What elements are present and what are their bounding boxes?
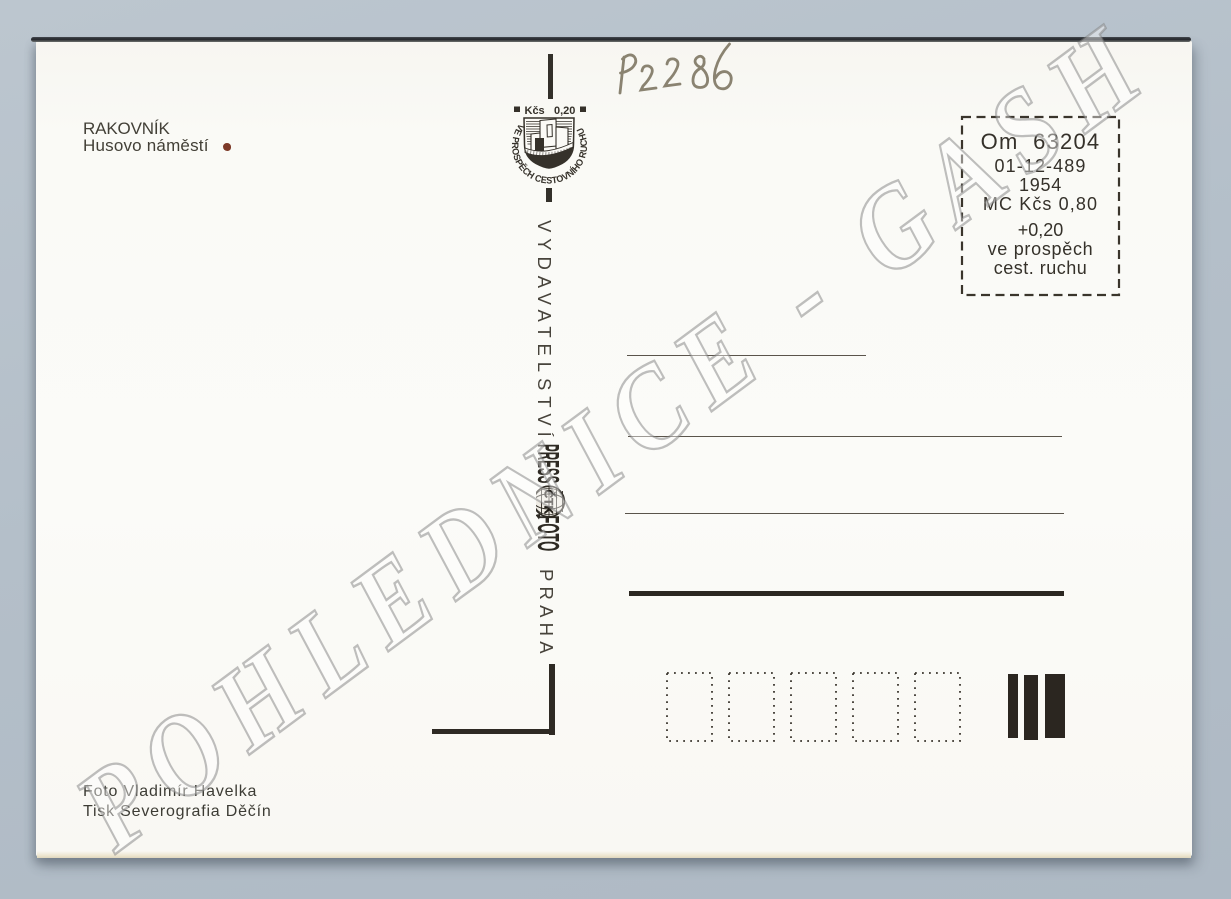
svg-text:Kčs: Kčs	[525, 105, 545, 117]
svg-text:0,20: 0,20	[554, 105, 575, 117]
